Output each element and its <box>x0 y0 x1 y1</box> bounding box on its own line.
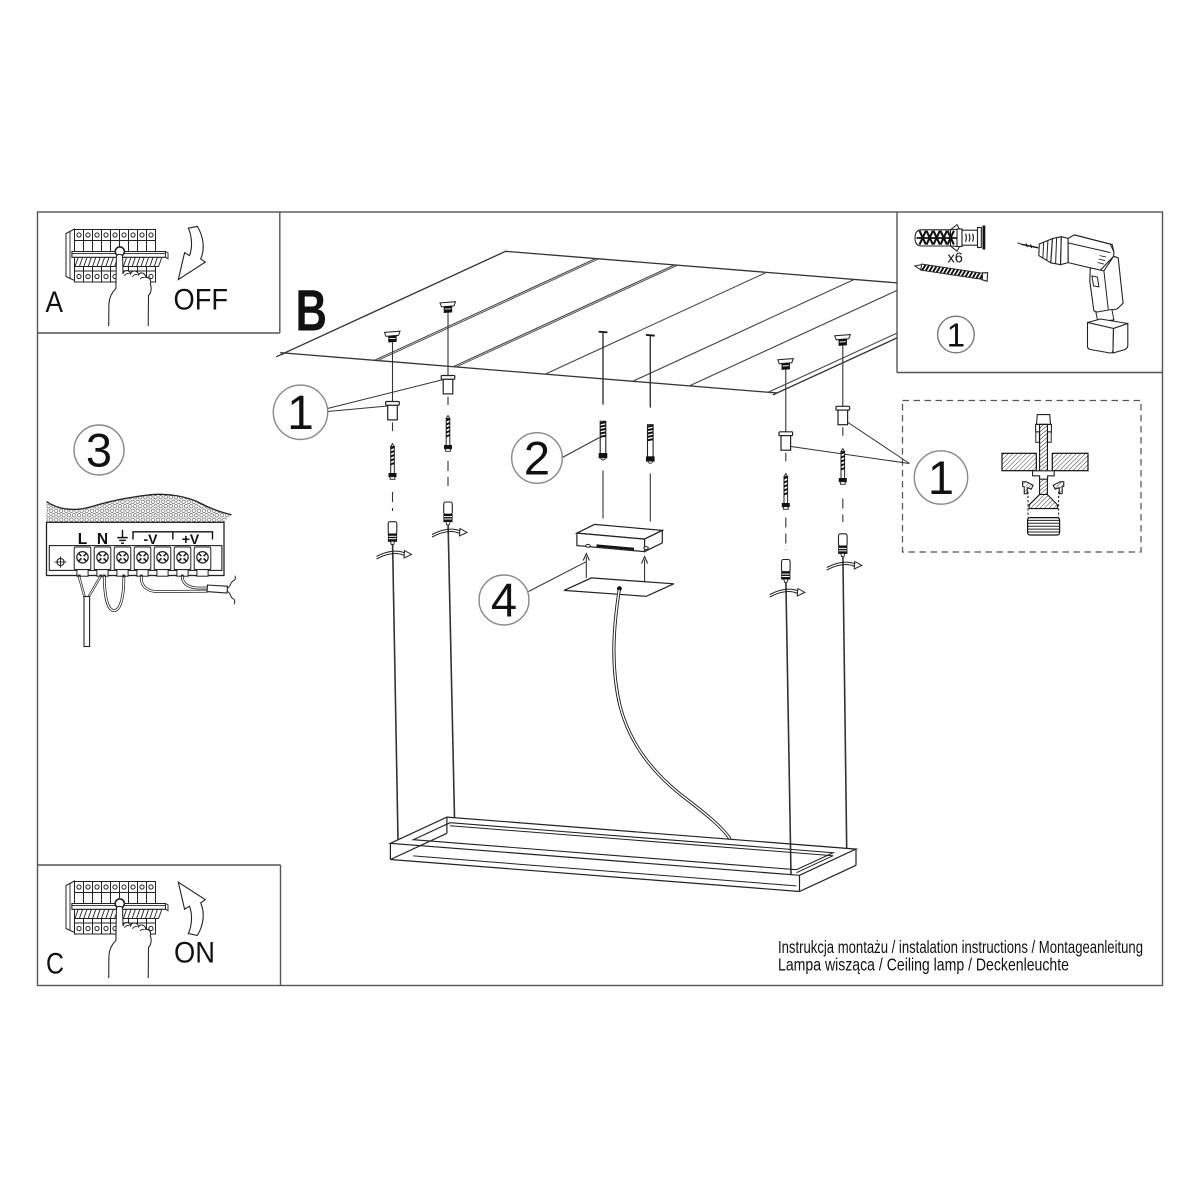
svg-text:2: 2 <box>524 431 550 484</box>
svg-text:A: A <box>46 286 64 319</box>
svg-text:Lampa wisząca / Ceiling lamp /: Lampa wisząca / Ceiling lamp / Deckenleu… <box>778 954 1069 974</box>
svg-text:OFF: OFF <box>174 284 229 317</box>
svg-text:+V: +V <box>182 531 200 547</box>
svg-text:N: N <box>97 531 108 548</box>
svg-text:3: 3 <box>86 423 112 476</box>
svg-text:ON: ON <box>174 937 215 970</box>
svg-text:B: B <box>296 279 328 344</box>
svg-text:C: C <box>46 948 64 981</box>
svg-text:L: L <box>78 531 87 548</box>
svg-text:1: 1 <box>947 316 965 353</box>
svg-text:x6: x6 <box>948 251 963 267</box>
svg-text:4: 4 <box>491 573 517 626</box>
svg-text:1: 1 <box>928 451 954 504</box>
svg-text:1: 1 <box>287 387 314 440</box>
svg-text:-V: -V <box>144 531 159 547</box>
